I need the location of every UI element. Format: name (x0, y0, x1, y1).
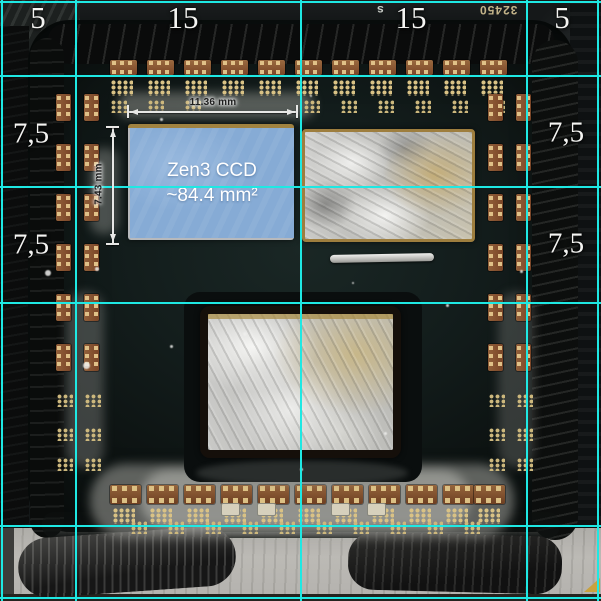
height-dimension-tick-bottom (106, 243, 119, 245)
ccd-die-name-label: Zen3 CCD (167, 158, 257, 183)
smd-chip (184, 60, 211, 75)
solder-speck (310, 95, 312, 97)
smd-chip (56, 344, 71, 371)
pad-grid (85, 458, 101, 471)
smd-chip (56, 94, 71, 121)
measurement-grid-line-horizontal (0, 186, 601, 188)
pad-grid (168, 521, 184, 534)
smd-capacitor (443, 485, 474, 504)
smd-chip (516, 94, 531, 121)
smd-chip (443, 60, 470, 75)
scale-label-left: 7,5 (13, 118, 49, 151)
width-dimension-label: 11.36 mm (128, 97, 298, 108)
smd-chip (488, 144, 503, 171)
smd-chip (84, 94, 99, 121)
white-smd-chip (258, 504, 275, 515)
solder-speck (170, 345, 173, 348)
pad-grid (57, 458, 73, 471)
scale-label-right: 7,5 (548, 228, 584, 261)
pad-grid (517, 394, 533, 407)
ccd-die-highlight: Zen3 CCD ~84.4 mm² (130, 128, 294, 238)
scale-label-left: 7,5 (13, 229, 49, 262)
measurement-grid-line-vertical (597, 0, 599, 601)
width-arrowhead-right-icon (287, 109, 295, 115)
pad-grid (378, 100, 394, 113)
smd-chip (56, 244, 71, 271)
pad-grid (452, 100, 468, 113)
pad-grid (111, 100, 127, 113)
pad-grid (304, 100, 320, 113)
pad-grid (279, 521, 295, 534)
smd-chip (221, 60, 248, 75)
pad-grid (489, 428, 505, 441)
pad-grid (316, 521, 332, 534)
smd-capacitor (406, 485, 437, 504)
smd-capacitor (147, 485, 178, 504)
white-smd-chip (368, 504, 385, 515)
height-arrowhead-top-icon (110, 129, 116, 137)
pad-grid (478, 508, 500, 524)
smd-chip (56, 294, 71, 321)
epoxy-blob-bottom-right (347, 531, 562, 595)
measurement-grid-line-horizontal (0, 302, 601, 304)
smd-capacitor (332, 485, 363, 504)
pad-grid (390, 521, 406, 534)
smd-chip (84, 294, 99, 321)
pad-grid (517, 458, 533, 471)
white-smd-chip (222, 504, 239, 515)
measurement-grid-line-vertical (300, 0, 302, 601)
pad-grid (148, 80, 170, 96)
solder-speck (45, 270, 51, 276)
measurement-grid-line-horizontal (0, 1, 601, 3)
pad-grid (222, 80, 244, 96)
pad-grid (489, 394, 505, 407)
cpu-package-measurement-photo: 32450 s Zen3 CCD ~84.4 mm² 11.36 mm 7.43… (0, 0, 601, 601)
smd-chip (488, 344, 503, 371)
smd-capacitor (369, 485, 400, 504)
width-dimension-line (128, 111, 298, 113)
solder-speck (446, 304, 449, 307)
scale-label-top: 15 (168, 0, 199, 36)
pad-grid (370, 80, 392, 96)
solder-speck (83, 362, 90, 369)
solder-speck (95, 267, 99, 271)
width-dimension-tick-right (296, 105, 298, 118)
smd-chip (488, 244, 503, 271)
scale-label-top: 5 (554, 0, 570, 36)
pad-grid (259, 80, 281, 96)
smd-chip (56, 194, 71, 221)
smd-chip (488, 294, 503, 321)
smd-chip (369, 60, 396, 75)
smd-chip (516, 344, 531, 371)
measurement-grid-line-horizontal (0, 75, 601, 77)
pad-grid (333, 80, 355, 96)
scale-label-top: 15 (396, 0, 427, 36)
solder-speck (384, 432, 387, 435)
height-arrowhead-bottom-icon (110, 234, 116, 242)
pad-grid (85, 394, 101, 407)
measurement-grid-line-vertical (75, 0, 77, 601)
smd-capacitor (474, 485, 505, 504)
smd-capacitor (221, 485, 252, 504)
pad-grid (85, 428, 101, 441)
smd-chip (516, 294, 531, 321)
smd-chip (516, 244, 531, 271)
pad-grid (415, 100, 431, 113)
pad-grid (517, 428, 533, 441)
measurement-grid-line-horizontal (0, 597, 601, 599)
vice-left-strip (0, 26, 29, 531)
smd-chip (488, 194, 503, 221)
pad-grid (464, 521, 480, 534)
measurement-grid-line-horizontal (0, 525, 601, 527)
pad-grid (185, 80, 207, 96)
epoxy-band-right (532, 40, 578, 540)
smd-capacitor (184, 485, 215, 504)
measurement-grid-line-vertical (1, 0, 3, 601)
smd-chip (147, 60, 174, 75)
height-dimension-tick-top (106, 126, 119, 128)
white-smd-chip (332, 504, 349, 515)
height-dimension-line (112, 127, 114, 245)
pad-grid (444, 80, 466, 96)
io-die-gloss (196, 460, 408, 486)
scale-label-right: 7,5 (548, 117, 584, 150)
pad-grid (131, 521, 147, 534)
pad-grid (205, 521, 221, 534)
pad-grid (111, 80, 133, 96)
width-arrowhead-left-icon (130, 109, 138, 115)
pad-grid (242, 521, 258, 534)
solder-speck (520, 270, 523, 273)
solder-speck (352, 282, 354, 284)
silkscreen-number: 32450 (479, 3, 517, 17)
smd-chip (488, 94, 503, 121)
pad-grid (353, 521, 369, 534)
smd-chip (332, 60, 359, 75)
scale-label-top: 5 (30, 0, 46, 36)
smd-chip (516, 144, 531, 171)
smd-chip (406, 60, 433, 75)
smd-chip (110, 60, 137, 75)
smd-capacitor (258, 485, 289, 504)
height-dimension-label: 7.43 mm (94, 163, 105, 204)
solder-speck (160, 118, 163, 121)
smd-capacitor (110, 485, 141, 504)
measurement-grid-line-vertical (526, 0, 528, 601)
silkscreen-letter: s (377, 3, 384, 17)
pad-grid (341, 100, 357, 113)
pad-grid (407, 80, 429, 96)
pad-grid (427, 521, 443, 534)
width-dimension-tick-left (127, 105, 129, 118)
smd-chip (258, 60, 285, 75)
smd-chip (516, 194, 531, 221)
pad-grid (489, 458, 505, 471)
pad-grid (57, 428, 73, 441)
solder-speck (243, 332, 247, 336)
pad-grid (57, 394, 73, 407)
smd-chip (480, 60, 507, 75)
smd-chip (56, 144, 71, 171)
